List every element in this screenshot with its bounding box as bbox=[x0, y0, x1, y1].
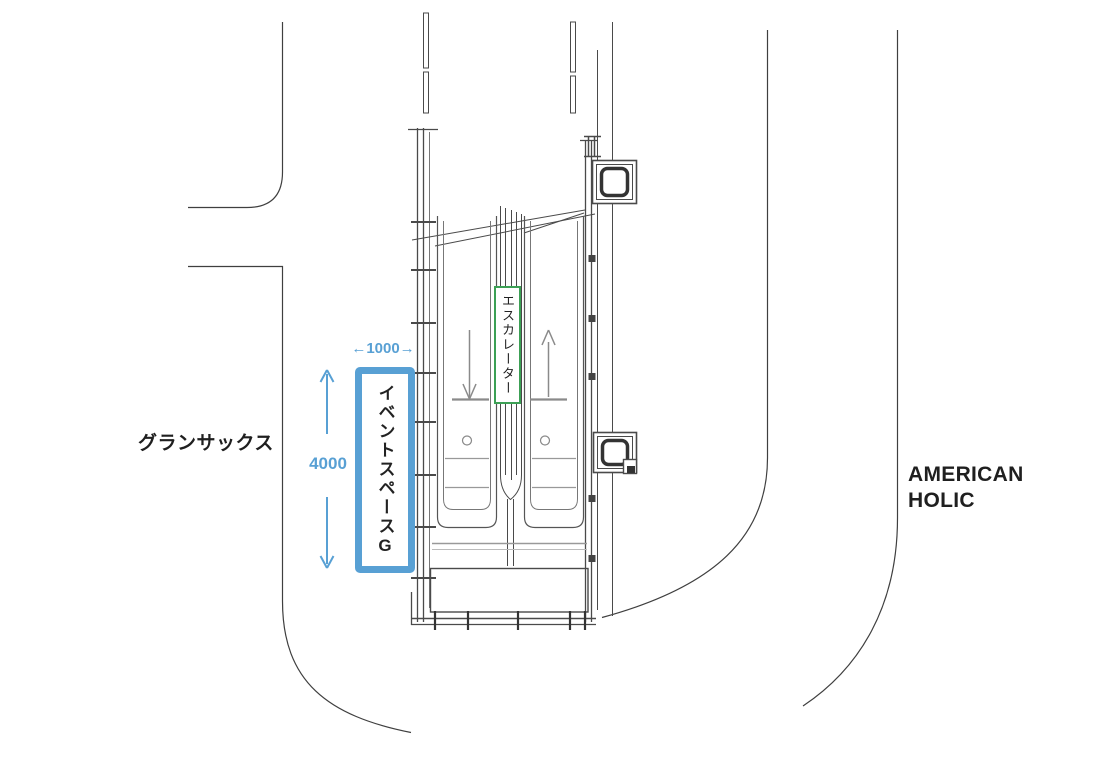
store-label-gransacs: グランサックス bbox=[138, 434, 274, 453]
escalator-label: エスカレーター bbox=[498, 294, 517, 396]
shaft-break-lines bbox=[412, 210, 595, 246]
store-label-american-holic: AMERICAN HOLIC bbox=[908, 462, 1033, 514]
dimension-width-1000: ←1000→ bbox=[347, 340, 419, 357]
corridor-walls bbox=[188, 22, 898, 733]
up-arrow bbox=[530, 330, 567, 400]
landing-area bbox=[411, 544, 596, 631]
floorplan-linework bbox=[0, 0, 1115, 759]
event-space-label: イベントスペースG bbox=[373, 384, 398, 557]
escalator-badge: エスカレーター bbox=[494, 286, 521, 404]
rail-bracket bbox=[584, 136, 601, 157]
column-middle bbox=[594, 433, 637, 474]
event-space-label-kana: イベントスペース bbox=[376, 384, 395, 536]
down-arrow bbox=[452, 330, 489, 400]
floor-plan: グランサックス AMERICAN HOLIC エスカレーター イベントスペースG… bbox=[0, 0, 1115, 759]
event-space-label-letter: G bbox=[376, 536, 395, 557]
event-space-badge: イベントスペースG bbox=[355, 367, 415, 573]
dimension-height-4000: 4000 bbox=[302, 454, 354, 474]
column-top bbox=[593, 161, 637, 204]
